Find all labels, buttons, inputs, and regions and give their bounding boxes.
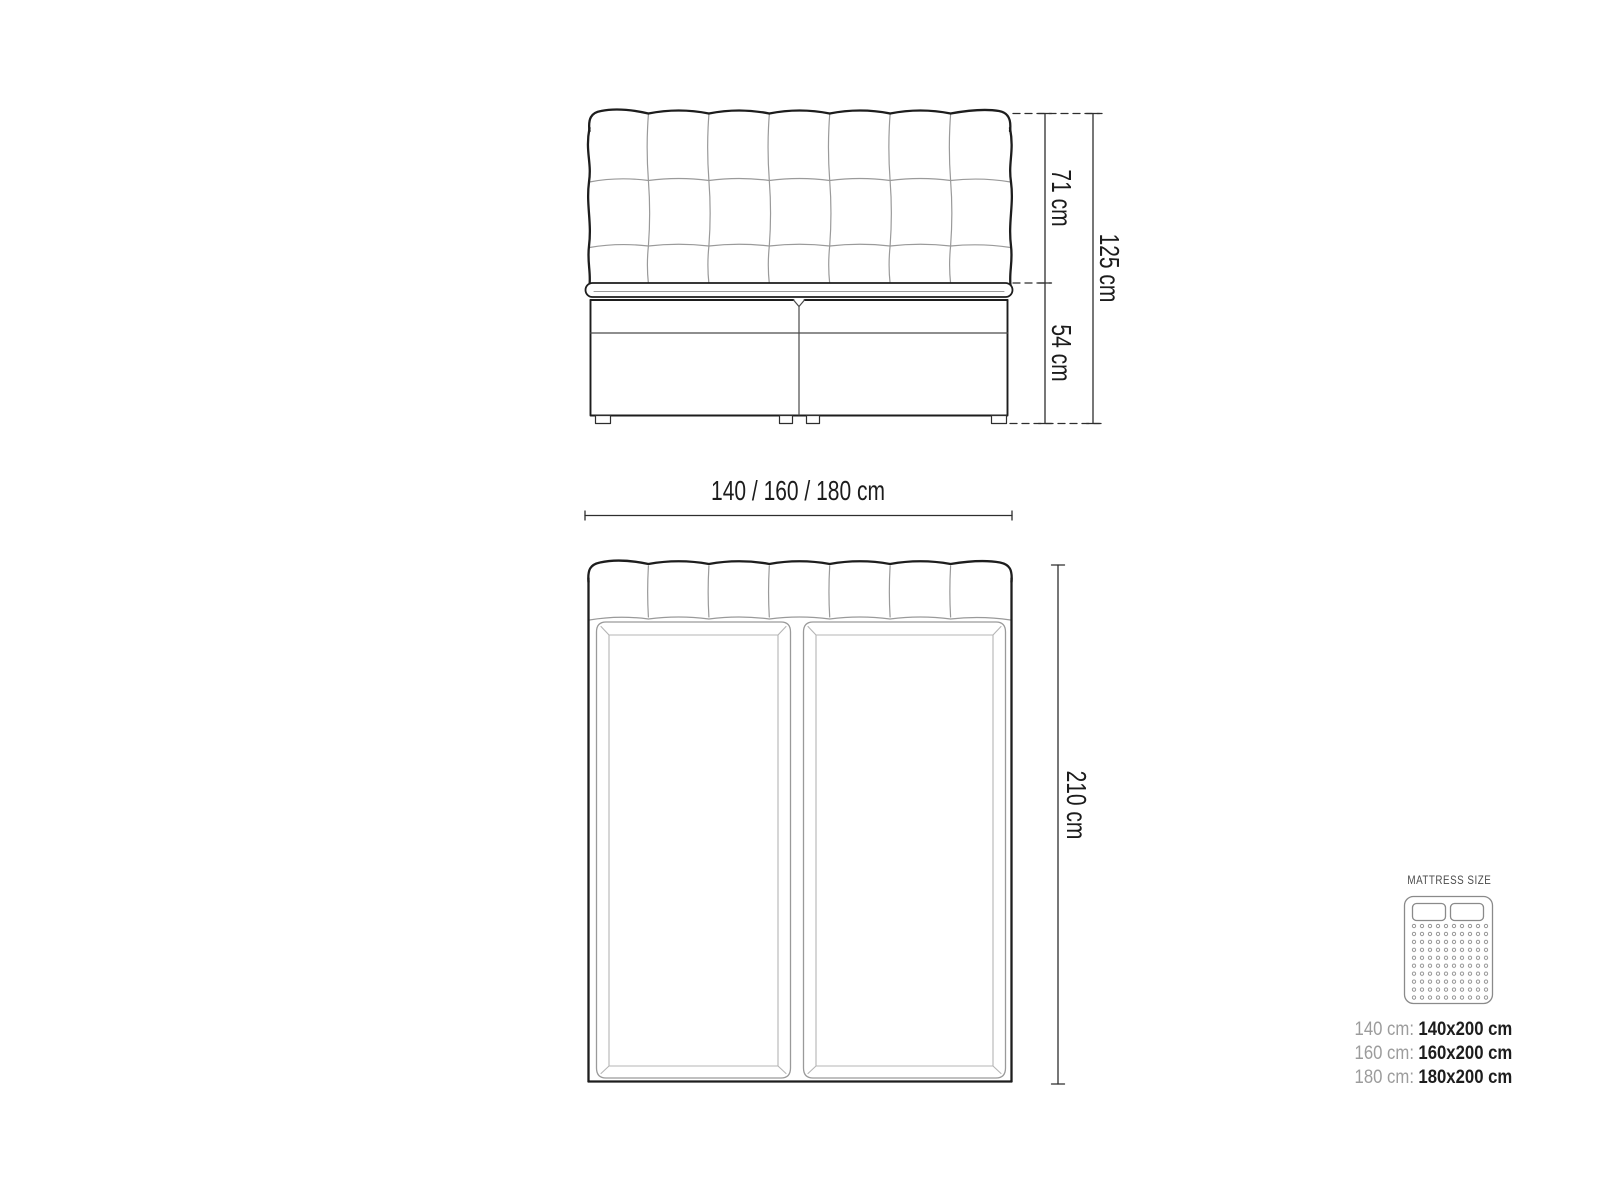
dimension-label-total-height: 125 cm xyxy=(1095,234,1123,303)
legend-size-label: 140 cm: xyxy=(1354,1019,1413,1040)
pillow-right-icon xyxy=(1451,904,1484,921)
width-dimension-line xyxy=(585,511,1012,520)
legend-title: MATTRESS SIZE xyxy=(1407,874,1491,886)
mattress-right xyxy=(804,622,1006,1078)
legend-row-140: 140 cm:140x200 cm xyxy=(1354,1018,1512,1042)
headboard-outline xyxy=(588,109,1012,285)
legend-size-value: 160x200 cm xyxy=(1418,1043,1512,1064)
legend-size-value: 140x200 cm xyxy=(1418,1019,1512,1040)
mattress-left xyxy=(597,622,791,1078)
dimension-label-base-height: 54 cm xyxy=(1047,324,1075,381)
dimension-label-headboard-height: 71 cm xyxy=(1047,169,1075,226)
legend-size-label: 160 cm: xyxy=(1354,1043,1413,1064)
legend-size-label: 180 cm: xyxy=(1354,1067,1413,1088)
bed-feet xyxy=(596,416,1007,424)
dimension-label-width-options: 140 / 160 / 180 cm xyxy=(711,477,885,505)
mattress-icon xyxy=(1405,897,1493,1004)
legend-row-160: 160 cm:160x200 cm xyxy=(1354,1042,1512,1066)
plan-headboard-lines xyxy=(590,566,1011,620)
bed-front-view xyxy=(585,109,1102,520)
legend-row-180: 180 cm:180x200 cm xyxy=(1354,1066,1512,1090)
bed-base xyxy=(591,300,1008,416)
legend-size-value: 180x200 cm xyxy=(1418,1067,1512,1088)
bed-top-view xyxy=(588,561,1064,1084)
headboard-tufting-lines xyxy=(590,115,1011,284)
dimension-label-length: 210 cm xyxy=(1062,771,1090,840)
mattress-bar xyxy=(586,283,1013,297)
pillow-left-icon xyxy=(1413,904,1446,921)
quilting-dots xyxy=(1410,922,1490,1002)
bed-dimension-diagram: 71 cm 54 cm 125 cm 140 / 160 / 180 cm 21… xyxy=(0,0,1600,1200)
